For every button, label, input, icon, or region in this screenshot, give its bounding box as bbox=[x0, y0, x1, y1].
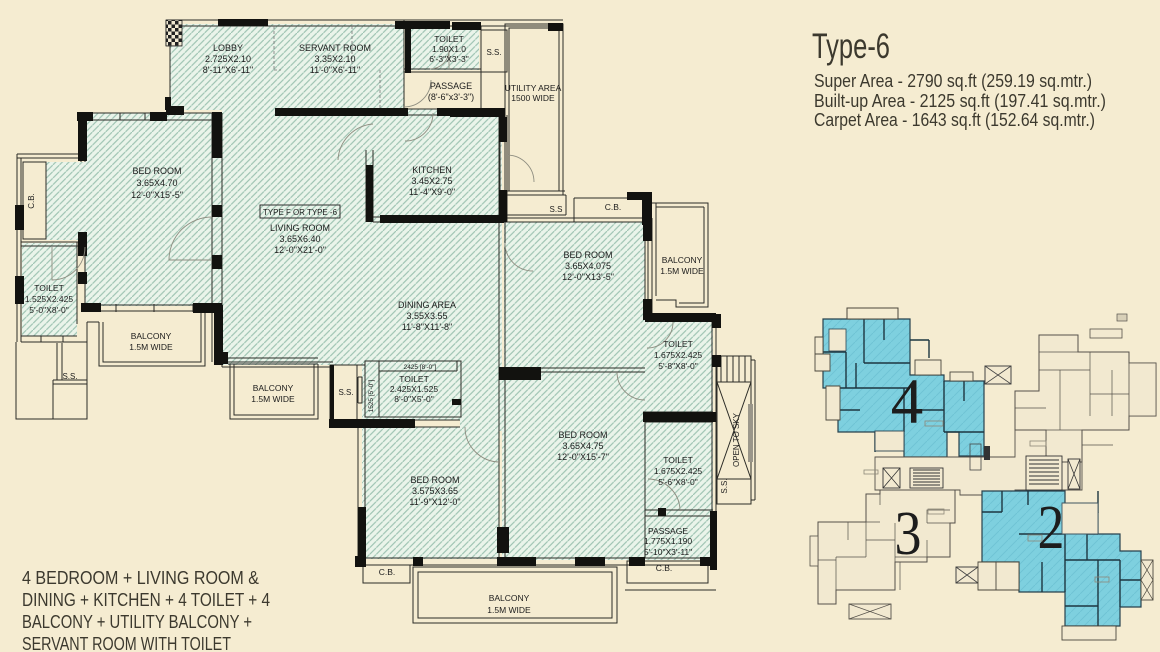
svg-text:PASSAGE: PASSAGE bbox=[430, 81, 472, 91]
svg-text:BALCONY: BALCONY bbox=[489, 593, 530, 603]
svg-text:1.5M WIDE: 1.5M WIDE bbox=[660, 266, 704, 276]
svg-text:BALCONY + UTILITY BALCONY +: BALCONY + UTILITY BALCONY + bbox=[22, 612, 252, 632]
svg-text:1.675X2.425: 1.675X2.425 bbox=[654, 350, 702, 360]
svg-text:DINING + KITCHEN + 4 TOILET +: DINING + KITCHEN + 4 TOILET + 4 bbox=[22, 590, 270, 610]
svg-text:11'-8"X11'-8": 11'-8"X11'-8" bbox=[402, 322, 453, 332]
svg-text:3: 3 bbox=[895, 500, 922, 568]
svg-text:2.725X2.10: 2.725X2.10 bbox=[205, 54, 251, 64]
svg-text:BED ROOM: BED ROOM bbox=[410, 475, 459, 485]
svg-text:LIVING ROOM: LIVING ROOM bbox=[270, 223, 330, 233]
svg-text:5'-8"X8'-0": 5'-8"X8'-0" bbox=[658, 361, 698, 371]
svg-text:BALCONY: BALCONY bbox=[131, 331, 172, 341]
svg-text:Super Area - 2790 sq.ft (259.1: Super Area - 2790 sq.ft (259.19 sq.mtr.) bbox=[814, 70, 1092, 91]
svg-text:S.S.: S.S. bbox=[486, 48, 501, 57]
svg-text:2.425X1.525: 2.425X1.525 bbox=[390, 384, 438, 394]
svg-text:Built-up Area - 2125 sq.ft (19: Built-up Area - 2125 sq.ft (197.41 sq.mt… bbox=[814, 90, 1106, 111]
svg-text:3.55X3.55: 3.55X3.55 bbox=[406, 311, 447, 321]
svg-text:8'-0"X5'-0": 8'-0"X5'-0" bbox=[394, 394, 434, 404]
svg-text:C.B.: C.B. bbox=[605, 202, 622, 212]
svg-text:S.S.: S.S. bbox=[338, 388, 353, 397]
svg-text:BED ROOM: BED ROOM bbox=[132, 166, 181, 176]
svg-text:5'-10"X3'-11": 5'-10"X3'-11" bbox=[644, 547, 692, 557]
svg-text:Type-6: Type-6 bbox=[812, 27, 890, 66]
svg-text:TYPE F OR TYPE -6: TYPE F OR TYPE -6 bbox=[263, 208, 338, 217]
svg-text:2425 [8'-0"]: 2425 [8'-0"] bbox=[404, 364, 437, 371]
svg-text:TOILET: TOILET bbox=[663, 339, 693, 349]
svg-text:S.S.: S.S. bbox=[62, 372, 77, 381]
svg-text:Carpet Area - 1643 sq.ft (152.: Carpet Area - 1643 sq.ft (152.64 sq.mtr.… bbox=[814, 109, 1095, 130]
svg-text:TOILET: TOILET bbox=[663, 455, 693, 465]
svg-text:TOILET: TOILET bbox=[399, 374, 429, 384]
svg-text:11'-9"X12'-0": 11'-9"X12'-0" bbox=[409, 497, 460, 507]
svg-text:8'-11"X6'-11": 8'-11"X6'-11" bbox=[203, 65, 254, 75]
svg-text:5'-0"X8'-0": 5'-0"X8'-0" bbox=[29, 305, 69, 315]
svg-text:LOBBY: LOBBY bbox=[213, 43, 243, 53]
svg-text:1.5M WIDE: 1.5M WIDE bbox=[487, 605, 531, 615]
svg-text:PASSAGE: PASSAGE bbox=[648, 526, 688, 536]
svg-text:DINING AREA: DINING AREA bbox=[398, 300, 456, 310]
svg-text:4 BEDROOM + LIVING ROOM &: 4 BEDROOM + LIVING ROOM & bbox=[22, 568, 259, 588]
svg-text:UTILITY AREA: UTILITY AREA bbox=[505, 83, 562, 93]
svg-text:BED ROOM: BED ROOM bbox=[558, 430, 607, 440]
svg-text:SERVANT ROOM: SERVANT ROOM bbox=[299, 43, 371, 53]
svg-text:11'-4"X9'-0": 11'-4"X9'-0" bbox=[409, 187, 455, 197]
svg-text:6'-3"X3'-3": 6'-3"X3'-3" bbox=[429, 54, 469, 64]
svg-text:3.575X3.65: 3.575X3.65 bbox=[412, 486, 458, 496]
svg-text:3.45X2.75: 3.45X2.75 bbox=[411, 176, 452, 186]
svg-text:BALCONY: BALCONY bbox=[253, 383, 294, 393]
svg-text:TOILET: TOILET bbox=[434, 34, 464, 44]
svg-text:BALCONY: BALCONY bbox=[662, 255, 703, 265]
svg-text:BED ROOM: BED ROOM bbox=[563, 250, 612, 260]
svg-text:12'-0"X15'-5": 12'-0"X15'-5" bbox=[131, 190, 183, 200]
svg-text:C.B.: C.B. bbox=[27, 193, 36, 209]
svg-text:1.90X1.0: 1.90X1.0 bbox=[432, 44, 466, 54]
svg-text:4: 4 bbox=[891, 366, 924, 438]
svg-text:1500 WIDE: 1500 WIDE bbox=[511, 93, 555, 103]
svg-text:3.35X2.10: 3.35X2.10 bbox=[314, 54, 355, 64]
svg-text:5'-6"X8'-0": 5'-6"X8'-0" bbox=[658, 477, 698, 487]
svg-text:11'-0"X6'-11": 11'-0"X6'-11" bbox=[310, 65, 361, 75]
svg-text:SERVANT ROOM WITH TOILET: SERVANT ROOM WITH TOILET bbox=[22, 634, 231, 652]
svg-text:3.65X4.70: 3.65X4.70 bbox=[136, 178, 177, 188]
svg-text:2: 2 bbox=[1038, 494, 1065, 562]
svg-text:1.525X2.425: 1.525X2.425 bbox=[25, 294, 73, 304]
svg-text:12'-0"X13'-5": 12'-0"X13'-5" bbox=[562, 272, 614, 282]
svg-text:3.65X4.75: 3.65X4.75 bbox=[562, 441, 603, 451]
svg-text:1.5M WIDE: 1.5M WIDE bbox=[129, 342, 173, 352]
svg-text:12'-0"X21'-0": 12'-0"X21'-0" bbox=[274, 245, 326, 255]
svg-text:S.S.: S.S. bbox=[720, 478, 729, 493]
svg-text:C.B.: C.B. bbox=[656, 563, 673, 573]
svg-text:OPEN TO SKY: OPEN TO SKY bbox=[732, 412, 741, 467]
svg-text:3.65X6.40: 3.65X6.40 bbox=[279, 234, 320, 244]
svg-text:12'-0"X15'-7": 12'-0"X15'-7" bbox=[557, 452, 609, 462]
svg-text:1.675X2.425: 1.675X2.425 bbox=[654, 466, 702, 476]
svg-text:1525 [5'-0"]: 1525 [5'-0"] bbox=[368, 379, 375, 412]
svg-text:1.5M WIDE: 1.5M WIDE bbox=[251, 394, 295, 404]
svg-text:(8'-6"x3'-3"): (8'-6"x3'-3") bbox=[428, 92, 474, 102]
svg-text:TOILET: TOILET bbox=[34, 283, 64, 293]
svg-text:1.775X1.190: 1.775X1.190 bbox=[644, 536, 692, 546]
svg-text:3.65X4.075: 3.65X4.075 bbox=[565, 261, 611, 271]
svg-text:S.S: S.S bbox=[550, 205, 563, 214]
svg-text:KITCHEN: KITCHEN bbox=[412, 165, 452, 175]
svg-text:C.B.: C.B. bbox=[379, 567, 396, 577]
